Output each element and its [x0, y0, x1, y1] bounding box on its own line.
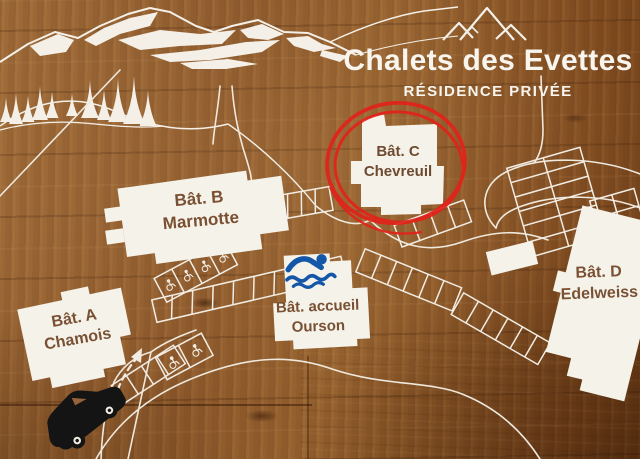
accessible-parking-pair: [155, 333, 213, 379]
building-subname: Ourson: [271, 315, 366, 338]
resort-map-sign: Chalets des Evettes RÉSIDENCE PRIVÉE Bât…: [0, 0, 640, 459]
mountain-logo-icon: [443, 8, 526, 40]
building-subname: Edelweiss: [550, 281, 640, 306]
sign-subtitle: RÉSIDENCE PRIVÉE: [336, 83, 640, 100]
pine-tree-icon: [32, 86, 48, 120]
pine-tree-icon: [46, 92, 59, 118]
wheelchair-icon: [181, 269, 193, 282]
building-label-d: Bât. D Edelweiss: [549, 260, 640, 306]
building-subname: Chevreuil: [352, 162, 444, 182]
pine-tree-icon: [123, 76, 145, 124]
sign-header: Chalets des Evettes RÉSIDENCE PRIVÉE: [336, 44, 640, 100]
pine-tree-icon: [9, 94, 23, 124]
small-building-shape: [486, 241, 538, 276]
wheelchair-icon: [199, 259, 211, 272]
pine-tree-icon: [0, 98, 12, 122]
parking-row: [356, 249, 462, 311]
building-label-c: Bât. C Chevreuil: [352, 142, 444, 182]
snow-patches: [30, 12, 348, 69]
wheelchair-icon: [164, 278, 176, 291]
pine-tree-icon: [140, 90, 157, 126]
building-name: Bât. accueil: [270, 295, 365, 318]
parking-row: [451, 293, 550, 365]
pine-tree-icon: [22, 96, 35, 122]
pine-tree-icon: [81, 80, 99, 118]
pine-tree-icon: [108, 78, 128, 122]
sign-title: Chalets des Evettes: [336, 44, 640, 77]
building-name: Bât. C: [352, 142, 444, 162]
wheelchair-icon: [166, 355, 179, 369]
building-label-accueil: Bât. accueil Ourson: [270, 295, 365, 338]
pine-tree-icon: [66, 94, 78, 116]
wheelchair-icon: [189, 343, 202, 357]
